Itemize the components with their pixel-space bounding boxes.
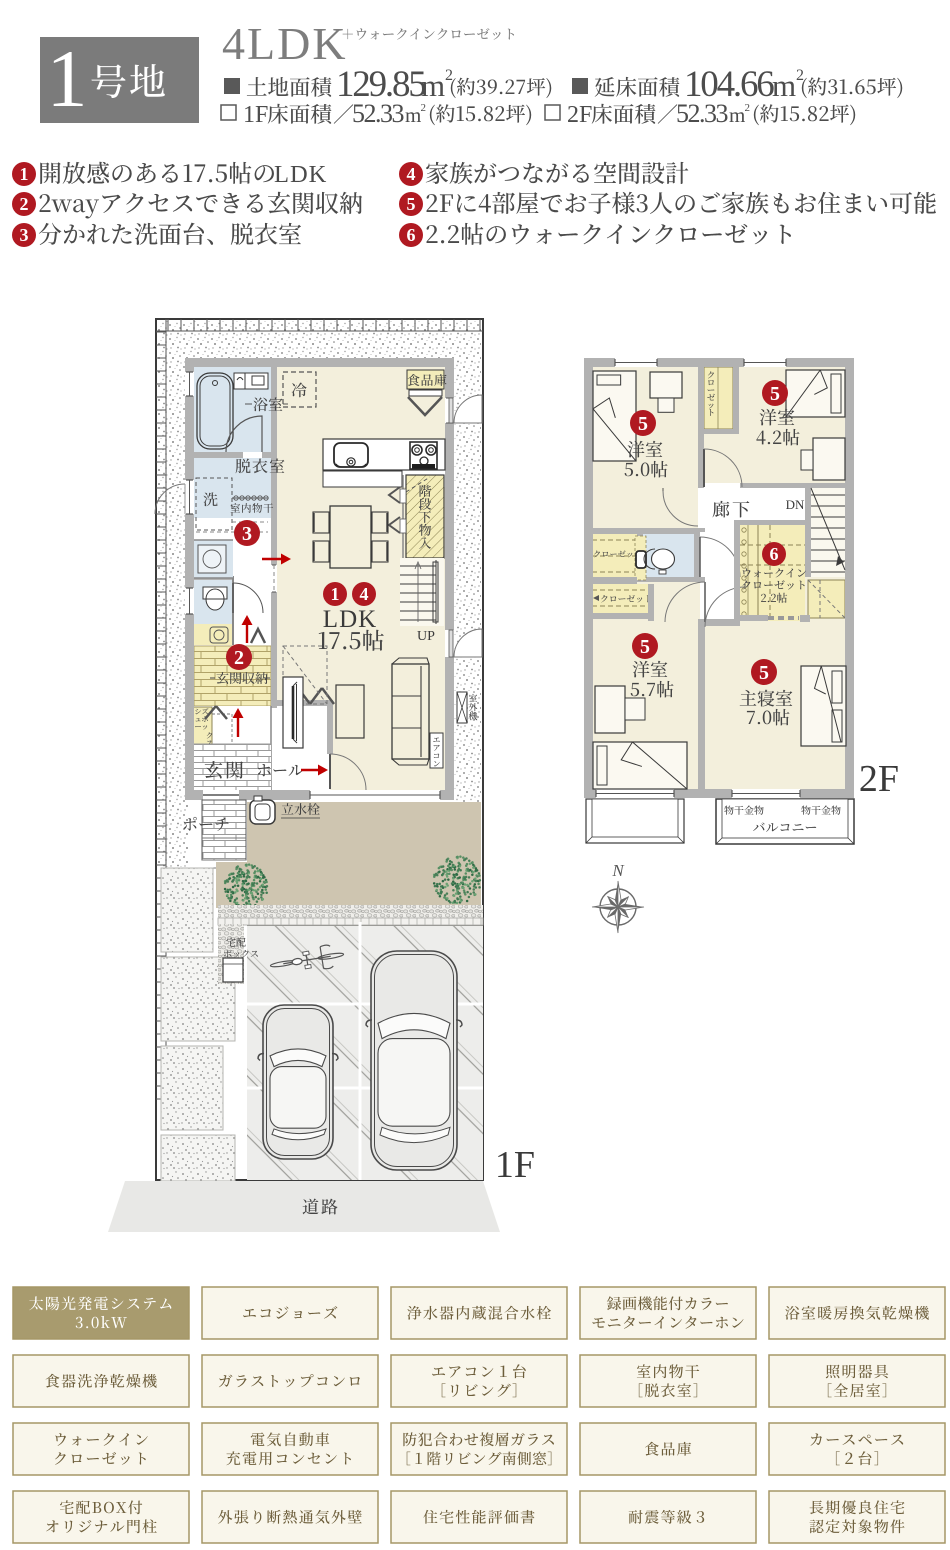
svg-text:5: 5 [638, 413, 648, 435]
svg-text:1: 1 [20, 164, 29, 184]
svg-text:2: 2 [796, 67, 804, 84]
svg-text:2: 2 [20, 194, 29, 214]
svg-text:5: 5 [759, 662, 769, 684]
svg-text:5: 5 [640, 636, 650, 658]
svg-text:2: 2 [421, 102, 427, 114]
svg-text:1F: 1F [495, 1144, 535, 1186]
svg-text:1: 1 [47, 33, 88, 124]
svg-text:N: N [611, 861, 625, 880]
svg-text:2: 2 [445, 67, 453, 84]
svg-text:m: m [729, 103, 745, 127]
svg-text:1F: 1F [243, 102, 268, 128]
svg-text:5: 5 [407, 194, 416, 214]
svg-text:1: 1 [331, 584, 340, 604]
svg-text:6: 6 [407, 225, 416, 245]
svg-text:LDK: LDK [274, 161, 327, 188]
svg-text:LDK: LDK [323, 606, 377, 633]
svg-text:m: m [772, 68, 796, 103]
svg-text:2F: 2F [859, 758, 899, 800]
svg-text:DN: DN [786, 497, 805, 512]
svg-text:3: 3 [20, 225, 29, 245]
svg-text:2F: 2F [567, 102, 592, 128]
svg-text:6: 6 [770, 544, 779, 564]
svg-text:4LDK: 4LDK [222, 18, 348, 69]
svg-text:5: 5 [770, 383, 780, 405]
svg-text:52.33: 52.33 [352, 99, 404, 128]
svg-text:2: 2 [745, 102, 751, 114]
svg-text:2: 2 [234, 647, 244, 669]
svg-text:4: 4 [407, 164, 416, 184]
svg-text:4: 4 [360, 584, 369, 604]
svg-text:m: m [405, 103, 421, 127]
svg-text:3: 3 [242, 523, 252, 545]
svg-text:UP: UP [417, 629, 435, 644]
svg-text:52.33: 52.33 [676, 99, 728, 128]
svg-text:m: m [421, 68, 445, 103]
